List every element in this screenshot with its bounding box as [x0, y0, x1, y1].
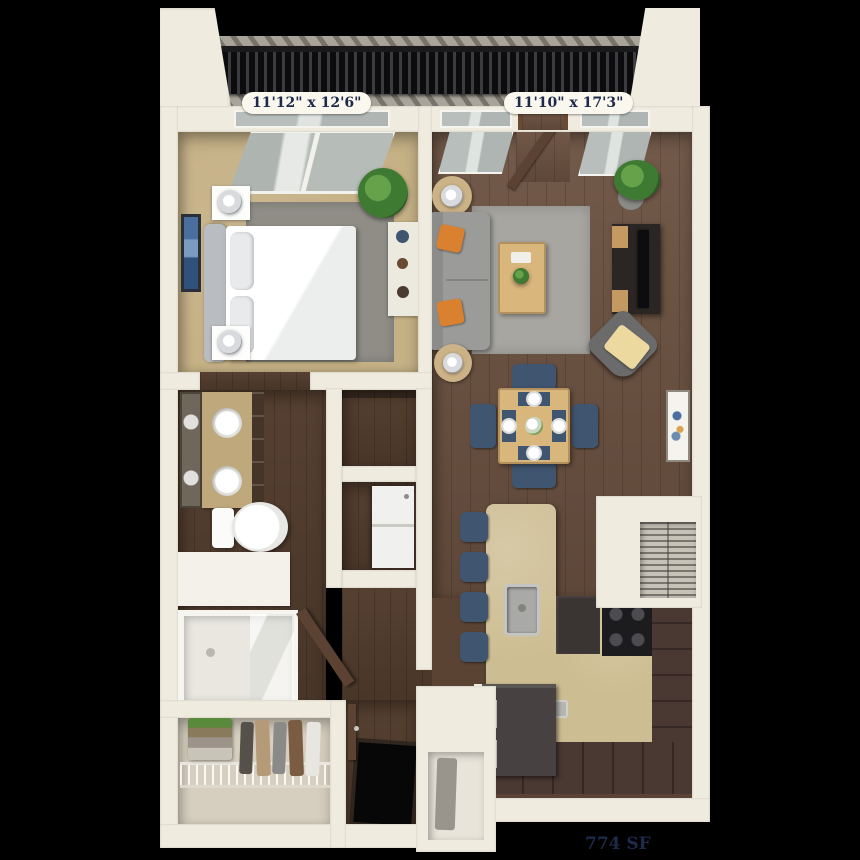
tv-console-wood-bottom — [612, 290, 628, 312]
closet-folded-clothes — [188, 718, 232, 760]
refrigerator — [556, 596, 600, 654]
dresser-decor-bowl — [397, 258, 408, 269]
bar-stool-3 — [460, 592, 488, 622]
nightstand-bottom-lamp — [218, 330, 242, 354]
bathroom-closet-wall — [326, 388, 342, 588]
vanity-drawers — [252, 392, 264, 508]
balcony-railing — [204, 46, 656, 94]
bedroom-bathroom-wall-a — [160, 372, 200, 390]
dresser-decor-dish — [397, 286, 409, 298]
walkin-closet-right-wall — [330, 700, 346, 848]
hvac-vent-louver — [640, 522, 696, 598]
bedroom-living-wall — [418, 106, 432, 388]
plate-bottom — [526, 445, 542, 461]
bottom-wall-left — [160, 824, 432, 848]
coat-closet-garment — [435, 758, 458, 831]
living-window-left — [438, 130, 514, 174]
hanging-garment-2 — [255, 720, 271, 776]
plate-left — [501, 418, 517, 434]
plate-top — [526, 391, 542, 407]
living-dimensions-label: 11'10" x 17'3" — [504, 92, 633, 114]
right-wall — [692, 106, 710, 822]
hanging-garment-5 — [305, 722, 321, 776]
floorplan: 11'12" x 12'6" 11'10" x 17'3" 774 SF — [0, 0, 860, 860]
shower-drain — [206, 648, 215, 657]
hanging-garment-3 — [272, 722, 287, 774]
bedroom-art — [181, 214, 201, 292]
vanity-sink-bottom — [212, 466, 242, 496]
coffee-table-tray — [511, 252, 531, 263]
plate-right — [551, 418, 567, 434]
bottom-wall-right — [480, 798, 710, 822]
entry-door-leaf — [348, 704, 356, 760]
bar-stool-4 — [460, 632, 488, 662]
bedroom-doorway — [200, 372, 310, 390]
dining-chair-top — [512, 364, 556, 390]
balcony-left-wall — [160, 8, 232, 112]
nightstand-top-lamp — [218, 190, 242, 214]
entry-door-mat — [353, 742, 416, 826]
washer-dryer-controls — [404, 494, 409, 499]
side-table-bottom-lamp — [443, 353, 463, 373]
island-faucet — [518, 604, 526, 612]
left-wall — [160, 106, 178, 848]
hall-closet-floor — [342, 388, 416, 468]
coffee-table-plant — [513, 268, 529, 284]
bed-pillow-top — [230, 232, 254, 290]
walkin-closet-top-wall — [160, 700, 346, 718]
hanging-garment-1 — [239, 722, 254, 774]
balcony-right-wall — [628, 8, 700, 112]
closet-column-bottom-wall — [342, 570, 416, 588]
bar-stool-2 — [460, 552, 488, 582]
toilet-tank — [212, 508, 234, 548]
vanity-mirror — [180, 392, 202, 508]
dining-chair-left — [470, 404, 496, 448]
closet-divider-wall — [342, 466, 416, 482]
side-table-top-lamp — [441, 185, 463, 207]
shower-glass — [250, 614, 294, 702]
bathroom-counter — [178, 552, 290, 606]
living-plant — [614, 160, 660, 200]
hanging-garment-4 — [288, 720, 304, 776]
dining-chair-bottom — [512, 462, 556, 488]
closet-column-right-wall — [416, 388, 432, 670]
toilet-bowl — [232, 502, 288, 552]
bar-stool-1 — [460, 512, 488, 542]
bedroom-plant — [358, 168, 408, 218]
dining-wall-art — [666, 390, 690, 462]
sofa-pillow-top — [436, 224, 466, 254]
washer-dryer-seam — [372, 524, 414, 527]
area-label: 774 SF — [585, 834, 651, 854]
dining-chair-right — [572, 404, 598, 448]
dresser-decor-vase — [396, 230, 409, 243]
vanity-sink-top — [212, 408, 242, 438]
dining-centerpiece — [525, 417, 543, 435]
sofa-seat-seam — [446, 279, 488, 281]
bedroom-dimensions-label: 11'12" x 12'6" — [242, 92, 371, 114]
tv-screen — [638, 230, 649, 308]
tv-console-wood-top — [612, 226, 628, 248]
entry-door-handle — [354, 726, 359, 731]
living-window-left-sill — [440, 110, 512, 128]
sofa-pillow-bottom — [436, 298, 465, 327]
